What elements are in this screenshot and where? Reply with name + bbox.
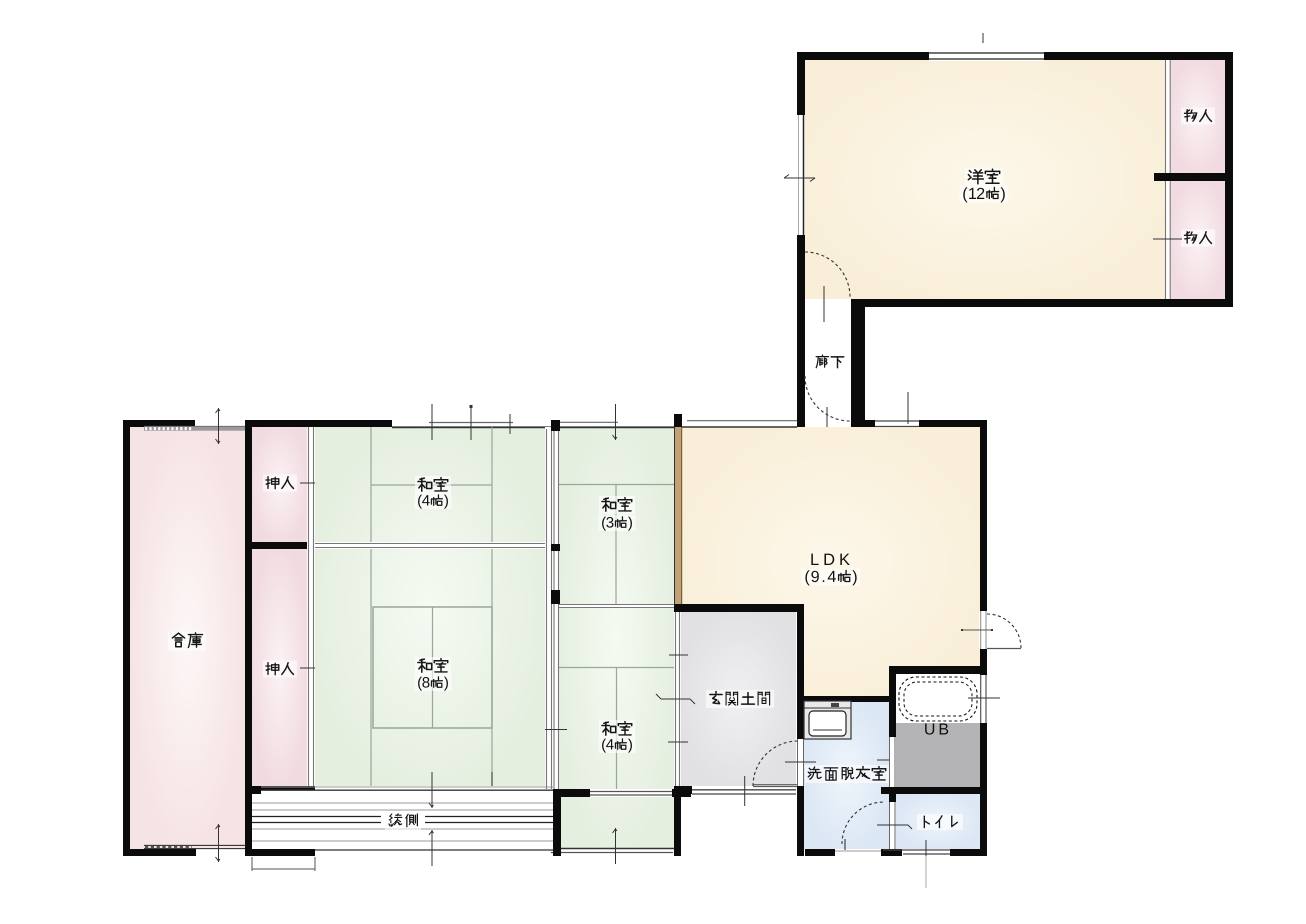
- svg-text:4: 4: [422, 493, 430, 510]
- svg-text:): ): [444, 493, 449, 510]
- svg-text:UB: UB: [924, 722, 952, 739]
- svg-text:9: 9: [811, 568, 820, 586]
- svg-text:2: 2: [976, 185, 985, 203]
- svg-text:4: 4: [827, 568, 836, 586]
- svg-text:.: .: [821, 568, 826, 586]
- svg-text:3: 3: [606, 515, 614, 532]
- svg-text:8: 8: [422, 675, 430, 692]
- svg-text:(: (: [804, 568, 810, 586]
- svg-text:): ): [1000, 185, 1005, 203]
- svg-text:): ): [628, 515, 633, 532]
- svg-text:): ): [852, 568, 857, 586]
- svg-text:LDK: LDK: [810, 551, 854, 569]
- svg-text:): ): [444, 675, 449, 692]
- svg-text:4: 4: [606, 737, 614, 754]
- svg-text:): ): [628, 737, 633, 754]
